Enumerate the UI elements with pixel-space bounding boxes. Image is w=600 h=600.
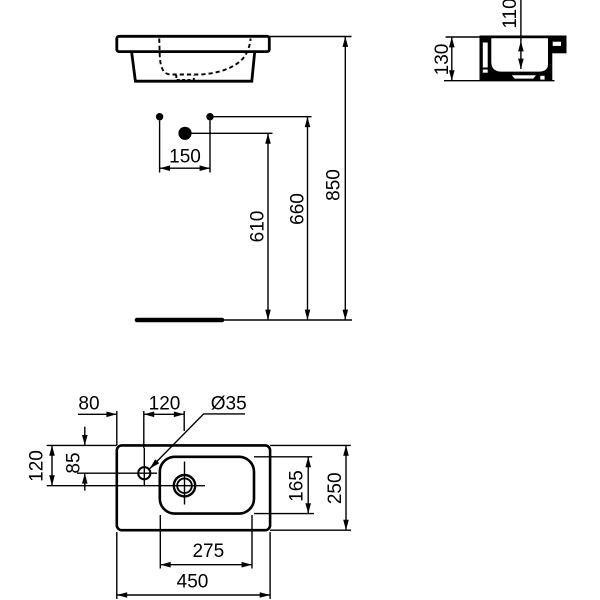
svg-text:610: 610 [248,211,269,243]
svg-text:660: 660 [288,193,309,225]
svg-text:120: 120 [26,450,47,482]
svg-text:850: 850 [324,169,345,201]
svg-text:120: 120 [149,394,181,415]
svg-text:110: 110 [500,0,521,29]
svg-text:150: 150 [169,147,201,168]
svg-text:250: 250 [325,472,346,504]
svg-text:275: 275 [192,541,224,562]
svg-text:85: 85 [64,452,85,473]
svg-text:130: 130 [432,44,453,76]
svg-text:80: 80 [78,394,99,415]
svg-text:165: 165 [287,470,308,502]
svg-text:450: 450 [177,572,209,593]
svg-text:Ø35: Ø35 [211,394,247,415]
